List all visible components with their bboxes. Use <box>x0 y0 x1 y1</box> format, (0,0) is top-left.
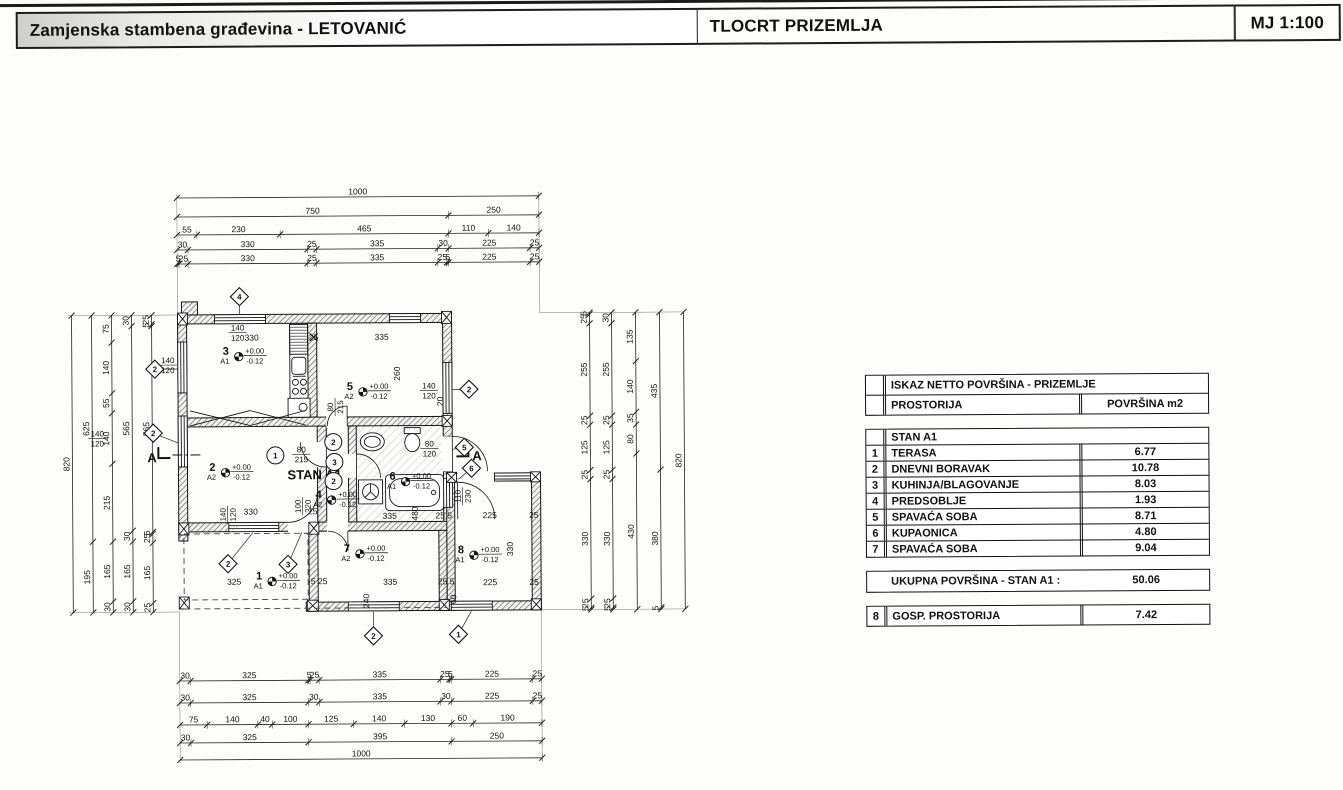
dim-text: 225 <box>482 238 497 248</box>
dim-text: 25 5 <box>438 576 455 586</box>
dim-text: 30 <box>180 670 190 680</box>
dim-text: 30 <box>178 239 188 249</box>
room-label: 7A2+0.00-0.12 <box>341 543 388 563</box>
annotation: 260 <box>392 366 402 381</box>
dim-text: 30 <box>309 692 319 702</box>
dim-text: 140 <box>625 379 635 394</box>
dim-text: 125 <box>601 440 611 455</box>
dim-text: +0.00 <box>412 471 431 480</box>
table-row: 1 TERASA 6.77 <box>866 443 1208 461</box>
annotation: 25 <box>529 577 539 587</box>
wall-bath-left <box>348 426 357 531</box>
table-row: 8 GOSP. PROSTORIJA 7.42 <box>867 605 1209 626</box>
table-total-box: UKUPNA POVRŠINA - STAN A1 : 50.06 <box>866 569 1210 593</box>
dim-text: +0.00 <box>366 544 385 553</box>
dim-text: 255 <box>601 362 611 377</box>
dim-text: 30 <box>122 602 132 612</box>
area-table: ISKAZ NETTO POVRŠINA - PRIZEMLJE PROSTOR… <box>865 373 1211 627</box>
dim-text: 25 <box>601 415 611 425</box>
dim-text: +0.00 <box>338 490 357 499</box>
dim-text: 120 <box>229 507 238 521</box>
dim-text: 80 <box>297 445 307 454</box>
annotation: 25 <box>529 510 539 520</box>
dim-text: 215 <box>102 495 112 510</box>
dim-text: 5 <box>141 323 151 328</box>
room-label: 4A2+0.00-0.12 <box>313 489 360 509</box>
dim-text: 435 <box>649 383 659 398</box>
dim-text: 30 <box>441 691 451 701</box>
table-row: 2 DNEVNI BORAVAK 10.78 <box>866 459 1208 477</box>
dim-text: 2 <box>467 385 472 394</box>
annotation: 80215 <box>292 445 310 464</box>
table-header-box: ISKAZ NETTO POVRŠINA - PRIZEMLJE PROSTOR… <box>865 373 1209 416</box>
window-marker: 2 <box>460 380 478 398</box>
table-row: 6 KUPAONICA 4.80 <box>867 523 1209 541</box>
dim-text: 140 <box>219 507 228 521</box>
dim-text: 820 <box>673 453 683 468</box>
room-label: 3A1+0.00-0.12 <box>220 345 267 365</box>
dim-text: 5 25 <box>311 576 328 586</box>
dim-text: 140 <box>101 361 111 376</box>
dim-text: 135 <box>625 329 635 344</box>
dim-text: 190 <box>500 712 515 722</box>
total-label: UKUPNA POVRŠINA - STAN A1 : <box>867 570 1083 591</box>
dim-text: A1 <box>254 582 263 591</box>
dim-text: 140 <box>231 324 245 333</box>
total-row: UKUPNA POVRŠINA - STAN A1 : 50.06 <box>867 570 1209 592</box>
table-column-header-row: PROSTORIJA POVRŠINA m2 <box>866 393 1208 415</box>
dim-text: 335 <box>375 332 390 342</box>
dim-text: 215 <box>295 455 309 464</box>
annotation: 25 <box>309 332 319 342</box>
dim-text: 125 <box>324 714 339 724</box>
dim-text: 30 <box>102 602 112 612</box>
dim-text: 330 <box>505 542 515 557</box>
annotation: 335 <box>383 511 398 521</box>
wall-room7-right <box>439 530 447 610</box>
dim-text: 240 <box>361 593 371 608</box>
dim-text: 330 <box>580 532 590 547</box>
annotation: 80215 <box>326 398 345 416</box>
annotation: 5 25 <box>311 576 328 586</box>
annotation: 325 <box>227 577 242 587</box>
dim-text: 25 <box>529 510 539 520</box>
dim-text: 5 <box>445 252 450 262</box>
dim-text: 40 <box>260 714 270 724</box>
dim-text: 140 <box>91 429 105 438</box>
dim-text: 120 <box>423 449 437 458</box>
dim-text: 6 <box>469 464 474 473</box>
dim-text: 25 <box>307 239 317 249</box>
annotation: 140120 <box>159 356 177 375</box>
dim-text: 80 <box>625 434 635 444</box>
window-kitchen-top <box>215 314 266 323</box>
annotation: 330 <box>505 542 515 557</box>
dim-text: 100 <box>283 714 298 724</box>
wall-mid-horizontal <box>187 416 452 427</box>
dim-text: 165 <box>102 564 112 579</box>
dim-text: 430 <box>626 524 636 539</box>
dim-text: -0.12 <box>413 481 430 490</box>
dim-text: -0.12 <box>370 392 387 401</box>
room-label: 1A1+0.00-0.12 <box>253 570 300 590</box>
dim-text: 2 <box>371 632 376 641</box>
dim-text: 335 <box>383 577 398 587</box>
annotation: 330 <box>245 333 260 343</box>
group-label: STAN A1 <box>883 428 1208 445</box>
dim-text: 1 <box>273 451 278 460</box>
washing-machine <box>359 480 383 504</box>
table-row: 7 SPAVAĆA SOBA 9.04 <box>867 539 1209 557</box>
table-extra-box: 8 GOSP. PROSTORIJA 7.42 <box>866 604 1210 627</box>
dim-text: 820 <box>61 457 71 472</box>
dim-text: 25 <box>529 577 539 587</box>
dim-text: 2 <box>226 560 231 569</box>
room-label: 2A2+0.00-0.12 <box>207 462 254 482</box>
dim-text: 750 <box>306 206 321 216</box>
window-room7-bottom <box>348 602 399 611</box>
total-value: 50.06 <box>1083 570 1209 591</box>
dim-text: 25 <box>533 690 543 700</box>
dim-text: 230 <box>464 489 473 503</box>
dim-text: 3 <box>332 458 337 467</box>
dim-text: 80 <box>425 439 435 448</box>
wall-room8-right <box>531 473 541 610</box>
table-title-row: ISKAZ NETTO POVRŠINA - PRIZEMLJE <box>866 374 1208 395</box>
annotation: 240 <box>361 593 371 608</box>
table-row: 4 PREDSOBLJE 1.93 <box>867 491 1209 509</box>
dim-text: 2 <box>151 429 156 438</box>
dim-text: +0.00 <box>369 382 388 391</box>
dim-text: 25 <box>579 470 589 480</box>
dim-text: 30 <box>601 313 611 323</box>
dim-text: 140 <box>422 381 436 390</box>
dim-text: A1 <box>455 555 464 564</box>
table-main-box: STAN A1 1 TERASA 6.77 2 DNEVNI BORAVAK 1… <box>865 427 1210 558</box>
dim-text: 225 <box>485 691 500 701</box>
dim-text: 465 <box>357 223 372 233</box>
dim-text: A1 <box>387 482 396 491</box>
annotation: 480 <box>410 506 420 521</box>
dim-text: 1 <box>456 630 461 639</box>
dim-text: -0.12 <box>233 473 250 482</box>
dim-text: 140 <box>161 356 175 365</box>
dim-text: 140 <box>372 713 387 723</box>
dim-text: 330 <box>245 333 260 343</box>
dim-text: 75 <box>101 324 111 334</box>
window-marker: 2 <box>219 555 237 573</box>
scanned-sheet: Zamjenska stambena građevina - LETOVANIĆ… <box>0 0 1343 790</box>
toilet <box>404 428 420 452</box>
dim-text: 75 <box>189 714 199 724</box>
dim-text: 2 <box>331 477 336 486</box>
dim-text: -0.12 <box>481 555 498 564</box>
dim-text: 100 <box>294 499 303 513</box>
dim-text: 25 <box>601 469 611 479</box>
dim-text: +0.00 <box>480 545 499 554</box>
door-marker: 2 <box>325 434 342 451</box>
window-living-bottom <box>229 522 279 531</box>
dim-text: 30 <box>181 692 191 702</box>
dim-text: 3 <box>286 560 291 569</box>
room-label: 8A1+0.00-0.12 <box>455 544 502 564</box>
dim-text: 1000 <box>348 186 367 196</box>
dim-text: 330 <box>244 507 259 517</box>
dim-text: 25 <box>142 533 152 543</box>
dim-text: -0.12 <box>280 581 297 590</box>
dim-text: 25 <box>142 603 152 613</box>
dim-text: 335 <box>370 238 385 248</box>
dim-text: 480 <box>410 506 420 521</box>
dim-text: 120 <box>161 366 175 375</box>
column-header-area: POVRŠINA m2 <box>1079 394 1208 414</box>
dim-text: 225 <box>482 252 497 262</box>
dim-text: 250 <box>490 731 505 741</box>
dim-text: 125 <box>579 440 589 455</box>
dim-text: 25 <box>179 253 189 263</box>
wall-room7-left <box>309 531 318 611</box>
dim-text: 25 <box>308 506 318 516</box>
dim-text: 5 <box>462 443 467 452</box>
group-row: STAN A1 <box>866 428 1208 445</box>
dim-text: 565 <box>121 421 131 436</box>
bath-sink <box>360 433 384 451</box>
dim-text: 225 <box>483 577 498 587</box>
dim-text: 2 <box>331 438 336 447</box>
dim-text: 25 <box>530 237 540 247</box>
dim-text: 5 <box>580 606 590 611</box>
dim-text: 25 <box>579 415 589 425</box>
dim-text: 80 <box>326 402 335 412</box>
dim-text: A2 <box>341 554 350 563</box>
dim-text: 25 5 <box>435 510 452 520</box>
dim-text: +0.00 <box>279 571 298 580</box>
annotation: 20 <box>435 396 445 406</box>
dim-text: 60 <box>458 713 468 723</box>
dim-text: 5 <box>448 669 453 679</box>
window-marker: 4 <box>230 288 248 306</box>
dim-text: 25 <box>307 253 317 263</box>
dim-text: -0.12 <box>367 554 384 563</box>
annotation: 25 5 <box>438 576 455 586</box>
dim-text: 130 <box>421 713 436 723</box>
dim-text: A1 <box>220 357 229 366</box>
table-title: ISKAZ NETTO POVRŠINA - PRIZEMLJE <box>883 374 1208 395</box>
annotation: 110230 <box>454 487 473 505</box>
window-bed5-top <box>390 314 421 323</box>
dim-text: 120 <box>231 334 245 343</box>
annotation: 225 <box>483 510 498 520</box>
wall-bottom <box>306 601 541 611</box>
dim-text: 330 <box>241 239 256 249</box>
dim-text: 35 <box>625 413 635 423</box>
annotation: 25 <box>308 506 318 516</box>
door-marker: 1 <box>267 447 284 464</box>
dim-text: 165 <box>142 566 152 581</box>
dim-text: 330 <box>602 531 612 546</box>
dim-text: 165 <box>122 564 132 579</box>
room-label: 5A2+0.00-0.12 <box>344 381 391 401</box>
dim-text: 25 <box>532 668 542 678</box>
dim-text: 110 <box>462 223 476 233</box>
window-marker: 2 <box>364 627 382 645</box>
window-room8-top <box>494 473 532 481</box>
dim-text: 55 <box>101 398 111 408</box>
dim-text: +0.00 <box>245 346 264 355</box>
dim-text: 325 <box>242 692 257 702</box>
annotation: 140120 <box>219 506 238 524</box>
dim-text: 230 <box>231 224 246 234</box>
dim-text: 4 <box>237 293 242 302</box>
annotation: 330 <box>244 507 259 517</box>
dim-text: -0.12 <box>339 500 356 509</box>
dim-text: 335 <box>370 252 385 262</box>
dim-text: -0.12 <box>246 356 263 365</box>
dim-text: 380 <box>650 531 660 546</box>
dim-text: 395 <box>373 731 388 741</box>
column-header-room: PROSTORIJA <box>883 395 1079 415</box>
dim-text: 250 <box>487 205 502 215</box>
annotation: 335 <box>375 332 390 342</box>
dim-text: 120 <box>91 439 105 448</box>
window-left-living <box>178 416 187 467</box>
dim-text: 335 <box>373 669 388 679</box>
dim-text: 325 <box>242 670 257 680</box>
dim-text: 2 <box>153 365 158 374</box>
table-row: 3 KUHINJA/BLAGOVANJE 8.03 <box>867 475 1209 493</box>
dim-text: A2 <box>344 392 353 401</box>
dim-text: 110 <box>454 489 463 502</box>
annotation: 60 <box>448 594 458 604</box>
dim-text: 5 <box>650 606 660 611</box>
dim-text: 215 <box>336 400 345 414</box>
dim-text: 30 <box>438 238 448 248</box>
window-marker: 1 <box>449 625 467 643</box>
dim-text: 225 <box>485 669 500 679</box>
dim-text: 260 <box>392 366 402 381</box>
dim-text: +0.00 <box>232 463 251 472</box>
dim-text: 335 <box>383 511 398 521</box>
kitchen-sink <box>292 357 306 374</box>
dim-text: 335 <box>373 691 388 701</box>
dim-text: 55 <box>182 224 192 234</box>
annotation: 25 5 <box>435 510 452 520</box>
dim-text: 60 <box>448 594 458 604</box>
dim-text: 25 <box>309 332 319 342</box>
dim-text: 225 <box>483 510 498 520</box>
annotation: 225 <box>483 577 498 587</box>
dim-text: 5 <box>602 606 612 611</box>
dim-text: 325 <box>227 577 242 587</box>
dim-text: 30 <box>122 531 132 541</box>
dim-text: 20 <box>435 396 445 406</box>
dim-text: 30 <box>181 732 191 742</box>
dim-text: 25 <box>530 251 540 261</box>
dim-text: 140 <box>225 714 240 724</box>
dim-text: 255 <box>579 362 589 377</box>
dim-text: 140 <box>507 222 522 232</box>
dim-text: 330 <box>241 253 256 263</box>
dim-text: 325 <box>243 732 258 742</box>
dim-text: A2 <box>207 473 216 482</box>
dim-text: 195 <box>82 570 92 585</box>
door-marker: 3 <box>326 454 343 471</box>
dim-text: 30 <box>121 316 131 326</box>
dim-text: 1000 <box>352 748 371 758</box>
door-marker: 2 <box>325 473 342 490</box>
annotation: 335 <box>383 577 398 587</box>
dim-text: 25 <box>579 314 589 324</box>
window-left-kitchen <box>178 342 187 393</box>
annotation: 140120 <box>88 429 106 448</box>
table-row: 5 SPAVAĆA SOBA 8.71 <box>867 507 1209 525</box>
dim-text: 25 <box>310 670 320 680</box>
